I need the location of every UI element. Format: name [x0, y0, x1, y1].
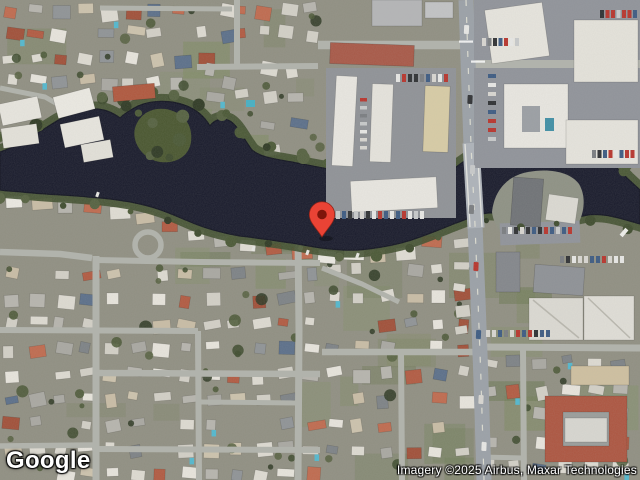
google-logo[interactable]: Google: [6, 447, 90, 475]
satellite-imagery: [0, 0, 640, 480]
map-viewport[interactable]: Google Imagery ©2025 Airbus, Maxar Techn…: [0, 0, 640, 480]
map-attribution: Imagery ©2025 Airbus, Maxar Technologies: [397, 463, 637, 477]
